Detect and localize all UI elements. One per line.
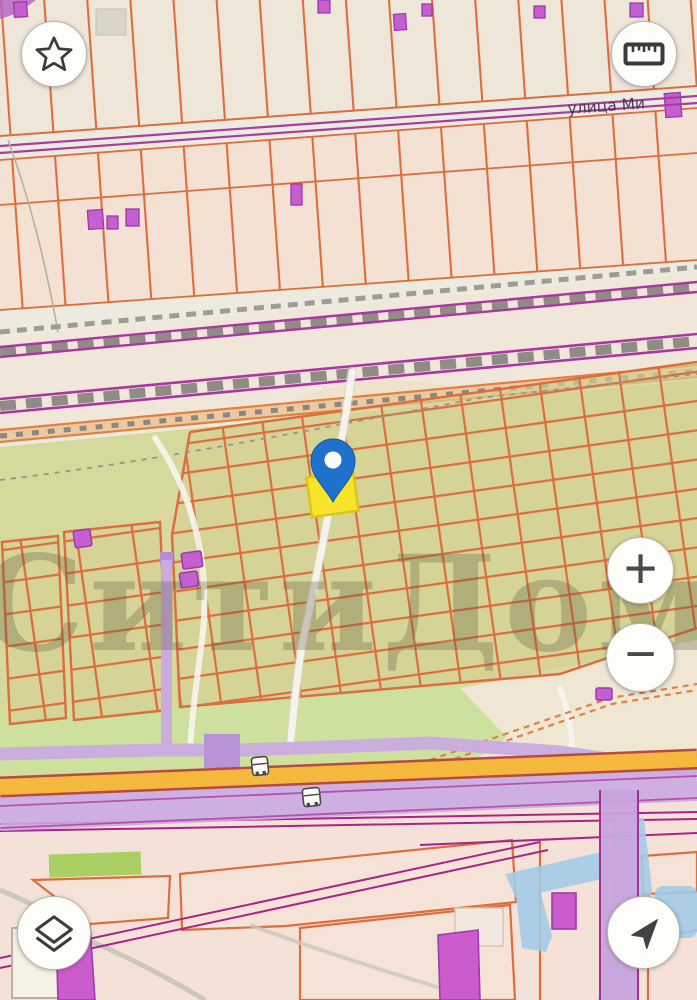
purple-road xyxy=(600,790,638,1000)
top-parcels-band xyxy=(0,0,697,310)
zoom-out-label: − xyxy=(625,627,657,681)
locate-button[interactable] xyxy=(607,896,680,969)
bus-stop-icon xyxy=(251,756,269,776)
measure-button[interactable] xyxy=(611,21,677,87)
star-icon xyxy=(35,35,73,73)
favorites-button[interactable] xyxy=(21,21,87,87)
layers-icon xyxy=(32,912,76,954)
grass-rect xyxy=(49,851,142,877)
bus-stop-icon xyxy=(302,787,321,807)
navigation-arrow-icon xyxy=(624,913,664,953)
map-app: улица Ми xyxy=(0,0,697,1000)
zoom-in-label: + xyxy=(624,540,658,598)
layers-button[interactable] xyxy=(17,896,91,970)
map-canvas[interactable]: улица Ми xyxy=(0,0,697,1000)
zoom-in-button[interactable]: + xyxy=(607,537,674,604)
watermark-text: СитиДом xyxy=(0,527,697,682)
zoom-out-button[interactable]: − xyxy=(606,623,675,692)
pipeline-node xyxy=(204,734,240,768)
ruler-icon xyxy=(623,39,665,69)
